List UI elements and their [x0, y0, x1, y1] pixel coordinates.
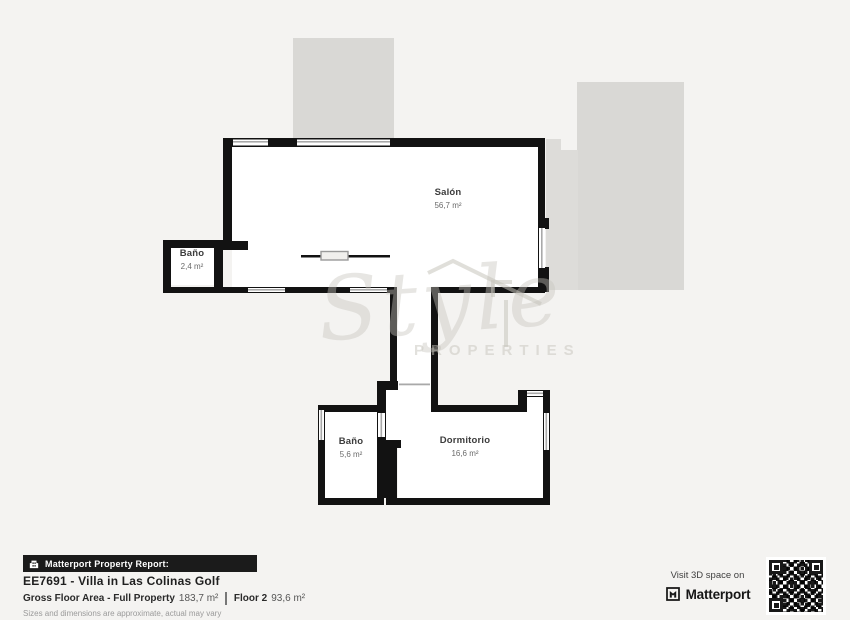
gross-area-value: 183,7 m² — [179, 593, 218, 604]
badge-label: Matterport Property Report: — [45, 559, 169, 569]
matterport-brand[interactable]: Matterport — [655, 586, 760, 602]
matterport-logo-icon — [665, 586, 681, 602]
qr-modules — [769, 560, 823, 612]
area-specs-row: Gross Floor Area - Full Property 183,7 m… — [23, 592, 305, 605]
property-title: EE7691 - Villa in Las Colinas Golf — [23, 574, 220, 588]
matterport-brand-name: Matterport — [686, 587, 751, 602]
floor-area-value: 93,6 m² — [271, 593, 305, 604]
disclaimer-text: Sizes and dimensions are approximate, ac… — [23, 609, 221, 618]
building-icon — [29, 559, 39, 569]
specs-divider — [225, 592, 227, 605]
report-badge: Matterport Property Report: — [23, 555, 257, 572]
qr-finder-icon — [809, 560, 823, 574]
qr-code[interactable] — [766, 557, 826, 615]
visit-3d-block: Visit 3D space on Matterport — [655, 570, 760, 602]
gross-area-label: Gross Floor Area - Full Property — [23, 593, 175, 604]
floor-label: Floor 2 — [234, 593, 267, 604]
floorplan-canvas — [0, 0, 850, 620]
visit-3d-text: Visit 3D space on — [655, 570, 760, 581]
qr-finder-icon — [769, 560, 783, 574]
matterport-floorplan-report: { "plan": { "rooms": [ {"name": "Salón",… — [0, 0, 850, 620]
qr-finder-icon — [769, 598, 783, 612]
